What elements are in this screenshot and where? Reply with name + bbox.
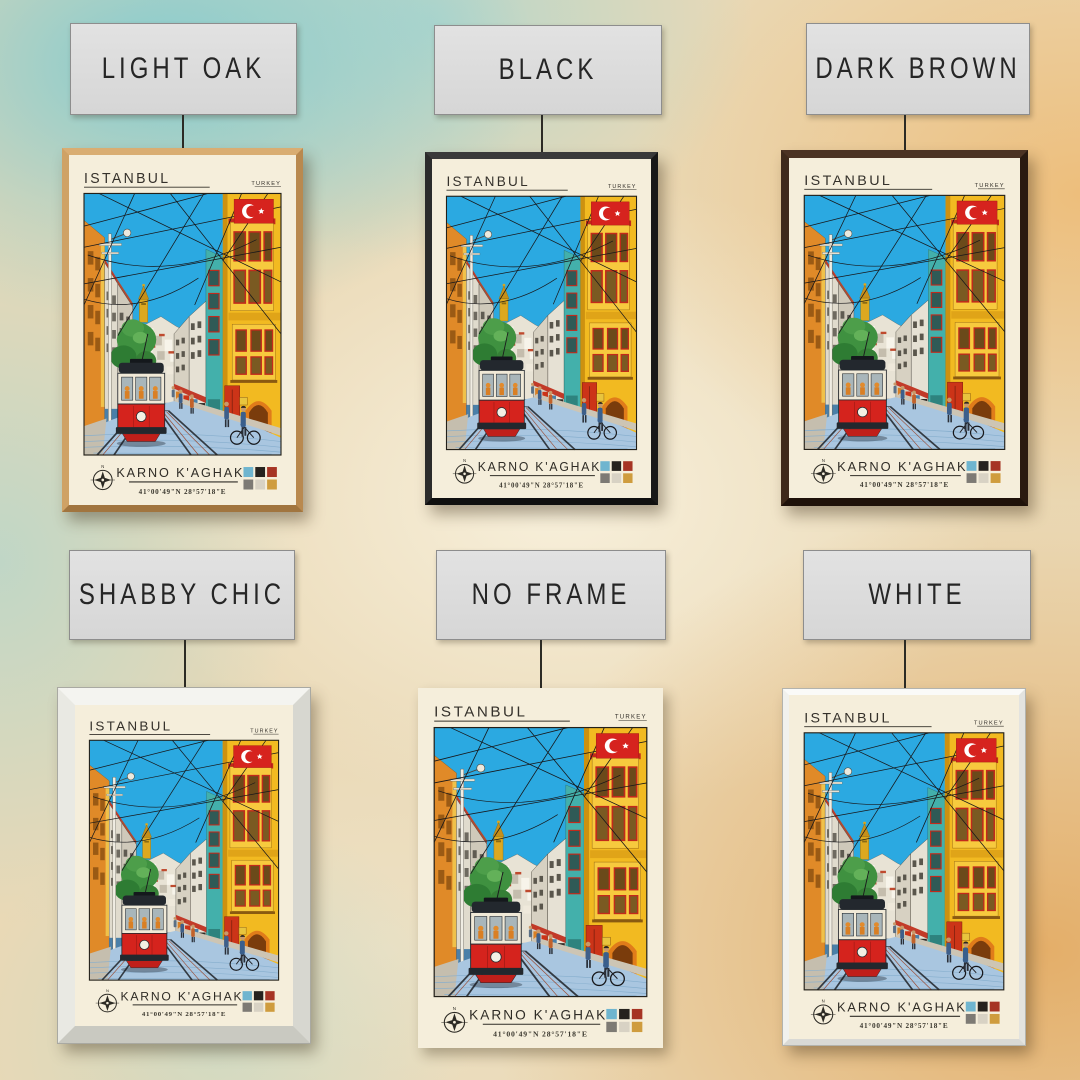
frame-option-label: NO FRAME	[436, 550, 666, 640]
poster-artwork	[418, 688, 663, 1048]
frame-option-label-text: LIGHT OAK	[102, 52, 266, 87]
frame-option-label: BLACK	[434, 25, 662, 115]
frame-option-label-text: BLACK	[499, 53, 598, 88]
poster-artwork	[789, 695, 1019, 1039]
hanging-string	[904, 640, 906, 689]
hanging-string	[904, 115, 906, 150]
poster-no-frame	[418, 688, 663, 1048]
poster-artwork	[432, 159, 651, 498]
poster-artwork	[789, 158, 1020, 498]
poster-artwork	[75, 705, 293, 1026]
mockup-canvas: ISTANBUL TURKEY	[0, 0, 1080, 1080]
framed-poster-black	[425, 152, 658, 505]
frame-option-label: WHITE	[803, 550, 1031, 640]
frame-option-label-text: SHABBY CHIC	[79, 578, 285, 613]
poster-artwork	[69, 155, 296, 505]
framed-poster-white	[783, 689, 1025, 1045]
frame-option-label: LIGHT OAK	[70, 23, 297, 115]
frame-option-label: DARK BROWN	[806, 23, 1030, 115]
framed-poster-dark-brown	[781, 150, 1028, 506]
frame-option-label: SHABBY CHIC	[69, 550, 295, 640]
frame-option-label-text: WHITE	[868, 578, 965, 613]
hanging-string	[184, 640, 186, 688]
hanging-string	[540, 640, 542, 688]
frame-option-label-text: DARK BROWN	[815, 52, 1020, 87]
hanging-string	[541, 115, 543, 152]
framed-poster-shabby-chic	[58, 688, 310, 1043]
framed-poster-light-oak	[62, 148, 303, 512]
frame-option-label-text: NO FRAME	[472, 578, 631, 613]
hanging-string	[182, 115, 184, 148]
